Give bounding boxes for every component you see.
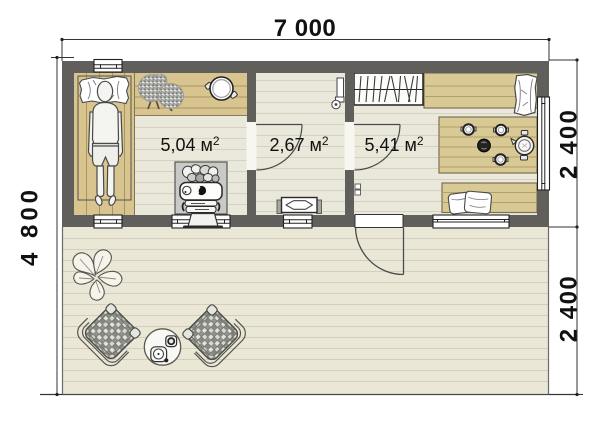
svg-text:5,04 м2: 5,04 м2 xyxy=(160,134,219,155)
svg-text:5,41 м2: 5,41 м2 xyxy=(364,134,423,155)
svg-text:2 400: 2 400 xyxy=(556,275,583,343)
svg-text:2 400: 2 400 xyxy=(556,108,583,179)
svg-text:4 800: 4 800 xyxy=(17,186,44,266)
svg-text:7 000: 7 000 xyxy=(274,15,337,42)
svg-text:2,67 м2: 2,67 м2 xyxy=(269,134,328,155)
